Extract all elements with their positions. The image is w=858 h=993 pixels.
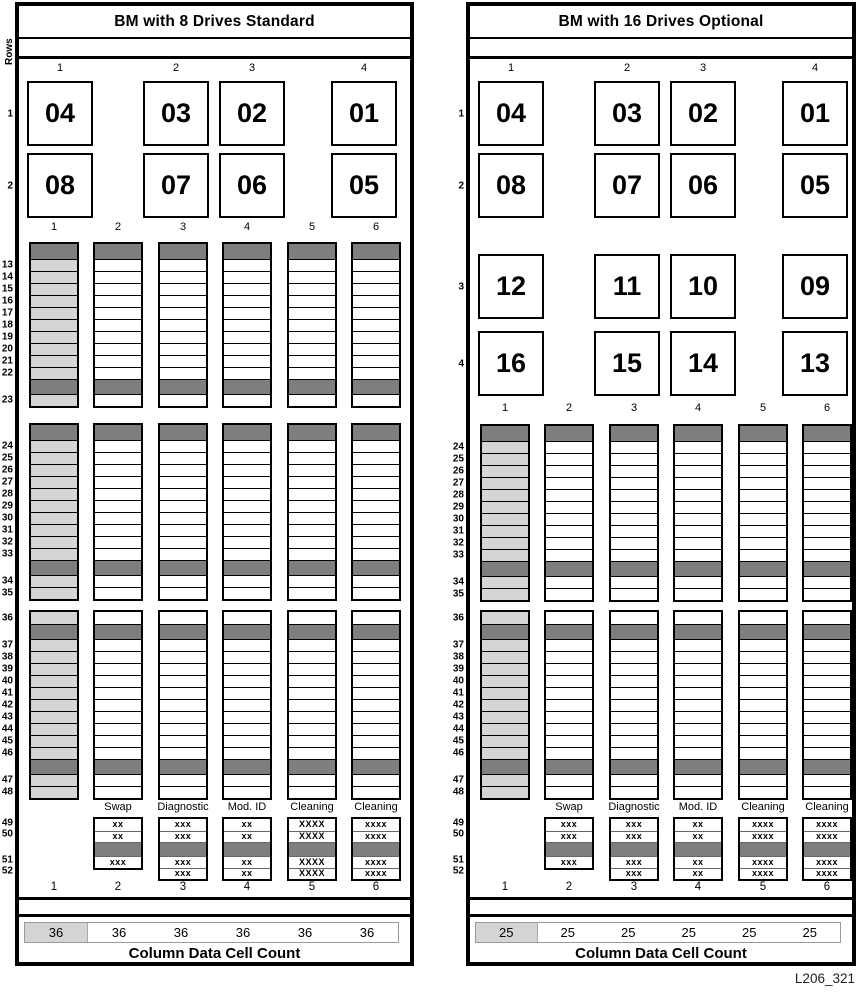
- storage-cell: [289, 488, 335, 500]
- storage-cell: [289, 343, 335, 355]
- storage-cell: [95, 488, 141, 500]
- blocked-cell: [546, 842, 592, 856]
- storage-cell: [740, 477, 786, 489]
- blocked-cell: [224, 759, 270, 774]
- special-column-header: Cleaning: [343, 801, 409, 813]
- drive-slot: 06: [670, 153, 736, 218]
- storage-cell: [31, 500, 77, 512]
- storage-cell: [160, 687, 206, 699]
- row-number-label: 48: [453, 787, 464, 798]
- drive-column-header: 2: [594, 62, 660, 74]
- row-number-label: 49: [2, 817, 13, 828]
- storage-cell-column: [29, 242, 79, 408]
- storage-cell: [611, 675, 657, 687]
- storage-cell-column: [287, 610, 337, 800]
- storage-cell: [95, 524, 141, 536]
- blocked-cell: [289, 624, 335, 639]
- count-value: 36: [88, 923, 150, 942]
- storage-cell: [224, 367, 270, 379]
- row-number-label: 39: [453, 664, 464, 675]
- storage-cell: [289, 612, 335, 624]
- row-number-label: 34: [2, 576, 13, 587]
- storage-cell: [224, 587, 270, 599]
- storage-cell: [31, 675, 77, 687]
- drive-slot: 01: [782, 81, 848, 146]
- storage-cell: [95, 307, 141, 319]
- storage-cell: [611, 711, 657, 723]
- blocked-cell: [95, 425, 141, 440]
- special-column-header: Swap: [536, 801, 602, 813]
- row-number-label: 41: [453, 688, 464, 699]
- storage-cell: [675, 477, 721, 489]
- storage-cell: [224, 575, 270, 587]
- storage-cell: [160, 259, 206, 271]
- storage-cell: [353, 319, 399, 331]
- special-cell: XXXX: [289, 856, 335, 868]
- blocked-cell: [160, 425, 206, 440]
- storage-cell: [95, 711, 141, 723]
- storage-cell: [546, 588, 592, 600]
- blocked-cell: [482, 426, 528, 441]
- storage-cell: [546, 501, 592, 513]
- storage-cell: [95, 512, 141, 524]
- blocked-cell: [224, 425, 270, 440]
- storage-cell: [675, 711, 721, 723]
- special-column-header: Swap: [85, 801, 151, 813]
- special-cell-box: xxxxxxxx: [673, 817, 723, 881]
- panel-title: BM with 16 Drives Optional: [470, 6, 852, 39]
- storage-cell: [160, 512, 206, 524]
- storage-cell: [353, 786, 399, 798]
- storage-cell: [546, 675, 592, 687]
- storage-cell: [289, 711, 335, 723]
- figure-reference-label: L206_321: [795, 971, 855, 986]
- storage-cell: [224, 747, 270, 759]
- row-number-label: 30: [2, 513, 13, 524]
- storage-cell: [740, 453, 786, 465]
- storage-cell: [546, 612, 592, 624]
- storage-cell: [31, 723, 77, 735]
- storage-cell: [160, 747, 206, 759]
- storage-cell: [224, 612, 270, 624]
- storage-cell: [160, 524, 206, 536]
- storage-cell: [160, 307, 206, 319]
- special-cell: xx: [675, 831, 721, 843]
- storage-cell: [224, 394, 270, 406]
- cell-column-header: 4: [222, 221, 272, 233]
- storage-cell: [224, 774, 270, 786]
- drive-slot: 15: [594, 331, 660, 396]
- storage-cell: [804, 465, 850, 477]
- drive-slot: 04: [27, 81, 93, 146]
- storage-cell: [482, 747, 528, 759]
- storage-cell: [289, 440, 335, 452]
- column-data-cell-count-box: 363636363636 Column Data Cell Count: [19, 917, 410, 962]
- special-cell: xxx: [611, 856, 657, 868]
- storage-cell-column: [222, 610, 272, 800]
- row-number-gutter: 1234242526272829303132333435363738394041…: [449, 59, 466, 897]
- storage-cell: [675, 612, 721, 624]
- special-cell: xxx: [546, 856, 592, 868]
- panel-title: BM with 8 Drives Standard: [19, 6, 410, 39]
- storage-cell: [740, 723, 786, 735]
- storage-cell: [546, 489, 592, 501]
- row-number-label: 1: [7, 108, 13, 119]
- special-cell: xxx: [611, 819, 657, 831]
- row-number-label: 17: [2, 308, 13, 319]
- count-value: 25: [659, 923, 720, 942]
- spacer-strip: [19, 897, 410, 917]
- blocked-cell: [611, 842, 657, 856]
- blocked-cell: [31, 379, 77, 394]
- blocked-cell: [611, 624, 657, 639]
- blocked-cell: [160, 244, 206, 259]
- special-cell: xx: [224, 819, 270, 831]
- blocked-cell: [95, 759, 141, 774]
- count-strip: 363636363636: [24, 922, 399, 943]
- storage-cell: [95, 283, 141, 295]
- storage-cell: [740, 711, 786, 723]
- storage-cell: [95, 295, 141, 307]
- storage-cell: [482, 477, 528, 489]
- special-column-header: Cleaning: [279, 801, 345, 813]
- storage-cell: [675, 651, 721, 663]
- storage-cell: [546, 537, 592, 549]
- row-number-label: 37: [453, 640, 464, 651]
- blocked-cell: [675, 624, 721, 639]
- storage-cell: [353, 343, 399, 355]
- storage-cell: [353, 464, 399, 476]
- storage-cell: [224, 307, 270, 319]
- storage-cell: [482, 549, 528, 561]
- storage-cell-column: [158, 610, 208, 800]
- storage-cell: [160, 735, 206, 747]
- count-value: 25: [538, 923, 599, 942]
- storage-cell: [740, 549, 786, 561]
- special-cell-box: xxxxxxxxxxxxxxxx: [802, 817, 852, 881]
- special-cell-box: xxxxxxx: [93, 817, 143, 870]
- storage-cell-column: [93, 242, 143, 408]
- storage-cell: [160, 536, 206, 548]
- row-number-label: 43: [2, 712, 13, 723]
- storage-cell-column: [93, 610, 143, 800]
- storage-cell: [611, 663, 657, 675]
- storage-cell: [546, 723, 592, 735]
- storage-cell: [353, 452, 399, 464]
- special-cell: XXXX: [289, 868, 335, 880]
- row-number-label: 46: [2, 748, 13, 759]
- storage-cell: [95, 355, 141, 367]
- special-cell: xxxx: [353, 856, 399, 868]
- blocked-cell: [224, 560, 270, 575]
- storage-cell: [224, 735, 270, 747]
- storage-cell: [353, 307, 399, 319]
- blocked-cell: [740, 624, 786, 639]
- storage-cell: [289, 259, 335, 271]
- bottom-column-number: 5: [287, 881, 337, 893]
- special-cell: xxx: [95, 856, 141, 868]
- storage-cell: [804, 651, 850, 663]
- row-number-label: 18: [2, 320, 13, 331]
- storage-cell: [353, 651, 399, 663]
- storage-cell: [804, 477, 850, 489]
- special-cell-box: xxxxxxxxxxxx: [158, 817, 208, 881]
- storage-cell: [31, 295, 77, 307]
- panel-bm-8-drives: Rows BM with 8 Drives Standard 121314151…: [15, 2, 414, 966]
- storage-cell: [353, 488, 399, 500]
- storage-cell: [611, 537, 657, 549]
- row-number-label: 44: [453, 724, 464, 735]
- storage-cell: [289, 575, 335, 587]
- storage-cell: [160, 548, 206, 560]
- storage-cell: [546, 639, 592, 651]
- special-cell: xxxx: [804, 856, 850, 868]
- storage-cell: [353, 663, 399, 675]
- storage-cell-column: [222, 423, 272, 601]
- storage-cell: [804, 441, 850, 453]
- storage-cell: [224, 259, 270, 271]
- blocked-cell: [31, 244, 77, 259]
- storage-cell: [289, 699, 335, 711]
- storage-cell: [740, 441, 786, 453]
- storage-cell: [31, 711, 77, 723]
- storage-cell: [611, 489, 657, 501]
- storage-cell-column: [29, 423, 79, 601]
- storage-cell: [95, 500, 141, 512]
- storage-cell: [31, 587, 77, 599]
- storage-cell-column: [738, 610, 788, 800]
- storage-cell: [160, 394, 206, 406]
- bottom-column-number: 6: [351, 881, 401, 893]
- storage-cell: [31, 651, 77, 663]
- blocked-cell: [546, 624, 592, 639]
- storage-cell: [31, 575, 77, 587]
- special-cell-box: xxxxxxxxx: [544, 817, 594, 870]
- row-number-label: 19: [2, 332, 13, 343]
- storage-cell: [95, 651, 141, 663]
- storage-cell: [95, 587, 141, 599]
- row-number-label: 29: [2, 501, 13, 512]
- storage-cell: [95, 343, 141, 355]
- special-cell: xxxx: [740, 856, 786, 868]
- blocked-cell: [804, 842, 850, 856]
- storage-cell: [224, 651, 270, 663]
- storage-cell: [95, 723, 141, 735]
- special-cell: xxx: [160, 819, 206, 831]
- special-cell: xxx: [160, 868, 206, 880]
- storage-cell: [740, 501, 786, 513]
- row-number-label: 45: [2, 736, 13, 747]
- storage-cell: [160, 464, 206, 476]
- row-number-label: 42: [453, 700, 464, 711]
- blocked-cell: [611, 561, 657, 576]
- special-column-header: Mod. ID: [665, 801, 731, 813]
- column-data-cell-count-box: 252525252525 Column Data Cell Count: [470, 917, 852, 962]
- special-cell: xxxx: [740, 868, 786, 880]
- storage-cell: [675, 489, 721, 501]
- storage-cell: [289, 271, 335, 283]
- storage-cell: [675, 537, 721, 549]
- drive-slot: 05: [782, 153, 848, 218]
- storage-cell: [611, 774, 657, 786]
- storage-cell: [160, 711, 206, 723]
- blocked-cell: [740, 759, 786, 774]
- bottom-column-number: 4: [673, 881, 723, 893]
- panel-bm-16-drives: BM with 16 Drives Optional 1234242526272…: [466, 2, 856, 966]
- storage-cell: [31, 440, 77, 452]
- storage-cell: [224, 440, 270, 452]
- drive-slot: 07: [143, 153, 209, 218]
- storage-cell: [353, 548, 399, 560]
- blocked-cell: [289, 560, 335, 575]
- storage-cell: [353, 259, 399, 271]
- storage-cell: [353, 295, 399, 307]
- count-value: 36: [25, 923, 88, 942]
- storage-cell: [31, 259, 77, 271]
- row-number-label: 28: [2, 489, 13, 500]
- storage-cell: [289, 536, 335, 548]
- storage-cell: [224, 663, 270, 675]
- storage-cell-column: [480, 424, 530, 602]
- blocked-cell: [289, 379, 335, 394]
- storage-cell: [31, 331, 77, 343]
- blocked-cell: [804, 426, 850, 441]
- storage-cell: [353, 735, 399, 747]
- storage-cell: [95, 452, 141, 464]
- storage-cell: [675, 735, 721, 747]
- cell-column-header: 2: [544, 402, 594, 414]
- special-cell-box: xxxxxxxx: [222, 817, 272, 881]
- storage-cell: [95, 536, 141, 548]
- row-number-label: 24: [453, 442, 464, 453]
- cell-map: 1213141516171819202122232425262728293031…: [19, 59, 410, 897]
- storage-cell: [224, 639, 270, 651]
- storage-cell: [353, 711, 399, 723]
- storage-cell: [482, 576, 528, 588]
- storage-cell: [289, 687, 335, 699]
- storage-cell: [804, 663, 850, 675]
- storage-cell: [353, 639, 399, 651]
- storage-cell: [95, 735, 141, 747]
- storage-cell: [675, 525, 721, 537]
- row-number-label: 52: [453, 866, 464, 877]
- storage-cell: [31, 367, 77, 379]
- storage-cell: [675, 675, 721, 687]
- special-cell: XXXX: [289, 819, 335, 831]
- storage-cell: [611, 612, 657, 624]
- storage-cell: [804, 537, 850, 549]
- storage-cell: [546, 441, 592, 453]
- row-number-label: 14: [2, 272, 13, 283]
- drive-slot: 03: [594, 81, 660, 146]
- storage-cell: [482, 525, 528, 537]
- drive-slot: 08: [478, 153, 544, 218]
- row-number-label: 37: [2, 640, 13, 651]
- storage-cell: [804, 501, 850, 513]
- bottom-column-number: 6: [802, 881, 852, 893]
- storage-cell: [482, 663, 528, 675]
- blocked-cell: [804, 759, 850, 774]
- special-cell: xxxx: [353, 831, 399, 843]
- storage-cell: [675, 549, 721, 561]
- storage-cell: [31, 612, 77, 624]
- storage-cell: [160, 500, 206, 512]
- special-cell: xxxx: [353, 819, 399, 831]
- blocked-cell: [289, 842, 335, 856]
- count-value: 36: [274, 923, 336, 942]
- row-number-label: 49: [453, 817, 464, 828]
- count-value: 25: [719, 923, 780, 942]
- blocked-cell: [31, 560, 77, 575]
- row-number-label: 30: [453, 514, 464, 525]
- storage-cell: [740, 513, 786, 525]
- storage-cell: [289, 786, 335, 798]
- storage-cell: [482, 711, 528, 723]
- storage-cell: [740, 663, 786, 675]
- special-cell: xx: [95, 819, 141, 831]
- storage-cell: [224, 355, 270, 367]
- row-number-label: 50: [2, 829, 13, 840]
- count-strip: 252525252525: [475, 922, 841, 943]
- special-cell: xxxx: [740, 819, 786, 831]
- storage-cell: [740, 774, 786, 786]
- storage-cell-column: [158, 423, 208, 601]
- row-number-label: 28: [453, 490, 464, 501]
- storage-cell: [289, 587, 335, 599]
- storage-cell: [31, 476, 77, 488]
- row-number-label: 52: [2, 866, 13, 877]
- special-cell-box: xxxxxxxxxxxxxxxx: [738, 817, 788, 881]
- storage-cell: [224, 723, 270, 735]
- bottom-column-number: 3: [609, 881, 659, 893]
- drive-slot: 11: [594, 254, 660, 319]
- storage-cell: [353, 355, 399, 367]
- special-cell: xx: [675, 819, 721, 831]
- row-number-label: 32: [453, 538, 464, 549]
- cell-column-header: 1: [29, 221, 79, 233]
- storage-cell: [224, 536, 270, 548]
- storage-cell: [482, 453, 528, 465]
- storage-cell: [353, 524, 399, 536]
- drive-column-header: 1: [27, 62, 93, 74]
- storage-cell: [546, 687, 592, 699]
- storage-cell: [675, 441, 721, 453]
- storage-cell: [546, 465, 592, 477]
- row-number-label: 25: [453, 454, 464, 465]
- storage-cell: [546, 663, 592, 675]
- storage-cell-column: [351, 242, 401, 408]
- storage-cell-column: [544, 424, 594, 602]
- storage-cell-column: [93, 423, 143, 601]
- storage-cell: [95, 259, 141, 271]
- storage-cell: [224, 488, 270, 500]
- storage-cell: [224, 464, 270, 476]
- bottom-column-number: 4: [222, 881, 272, 893]
- storage-cell: [31, 283, 77, 295]
- storage-cell: [804, 639, 850, 651]
- special-cell: xxx: [160, 831, 206, 843]
- storage-cell: [482, 639, 528, 651]
- cell-column-header: 6: [351, 221, 401, 233]
- storage-cell: [289, 774, 335, 786]
- storage-cell: [31, 536, 77, 548]
- row-number-label: 36: [2, 613, 13, 624]
- storage-cell: [224, 512, 270, 524]
- storage-cell: [31, 663, 77, 675]
- storage-cell: [224, 548, 270, 560]
- storage-cell: [289, 651, 335, 663]
- special-cell: xx: [95, 831, 141, 843]
